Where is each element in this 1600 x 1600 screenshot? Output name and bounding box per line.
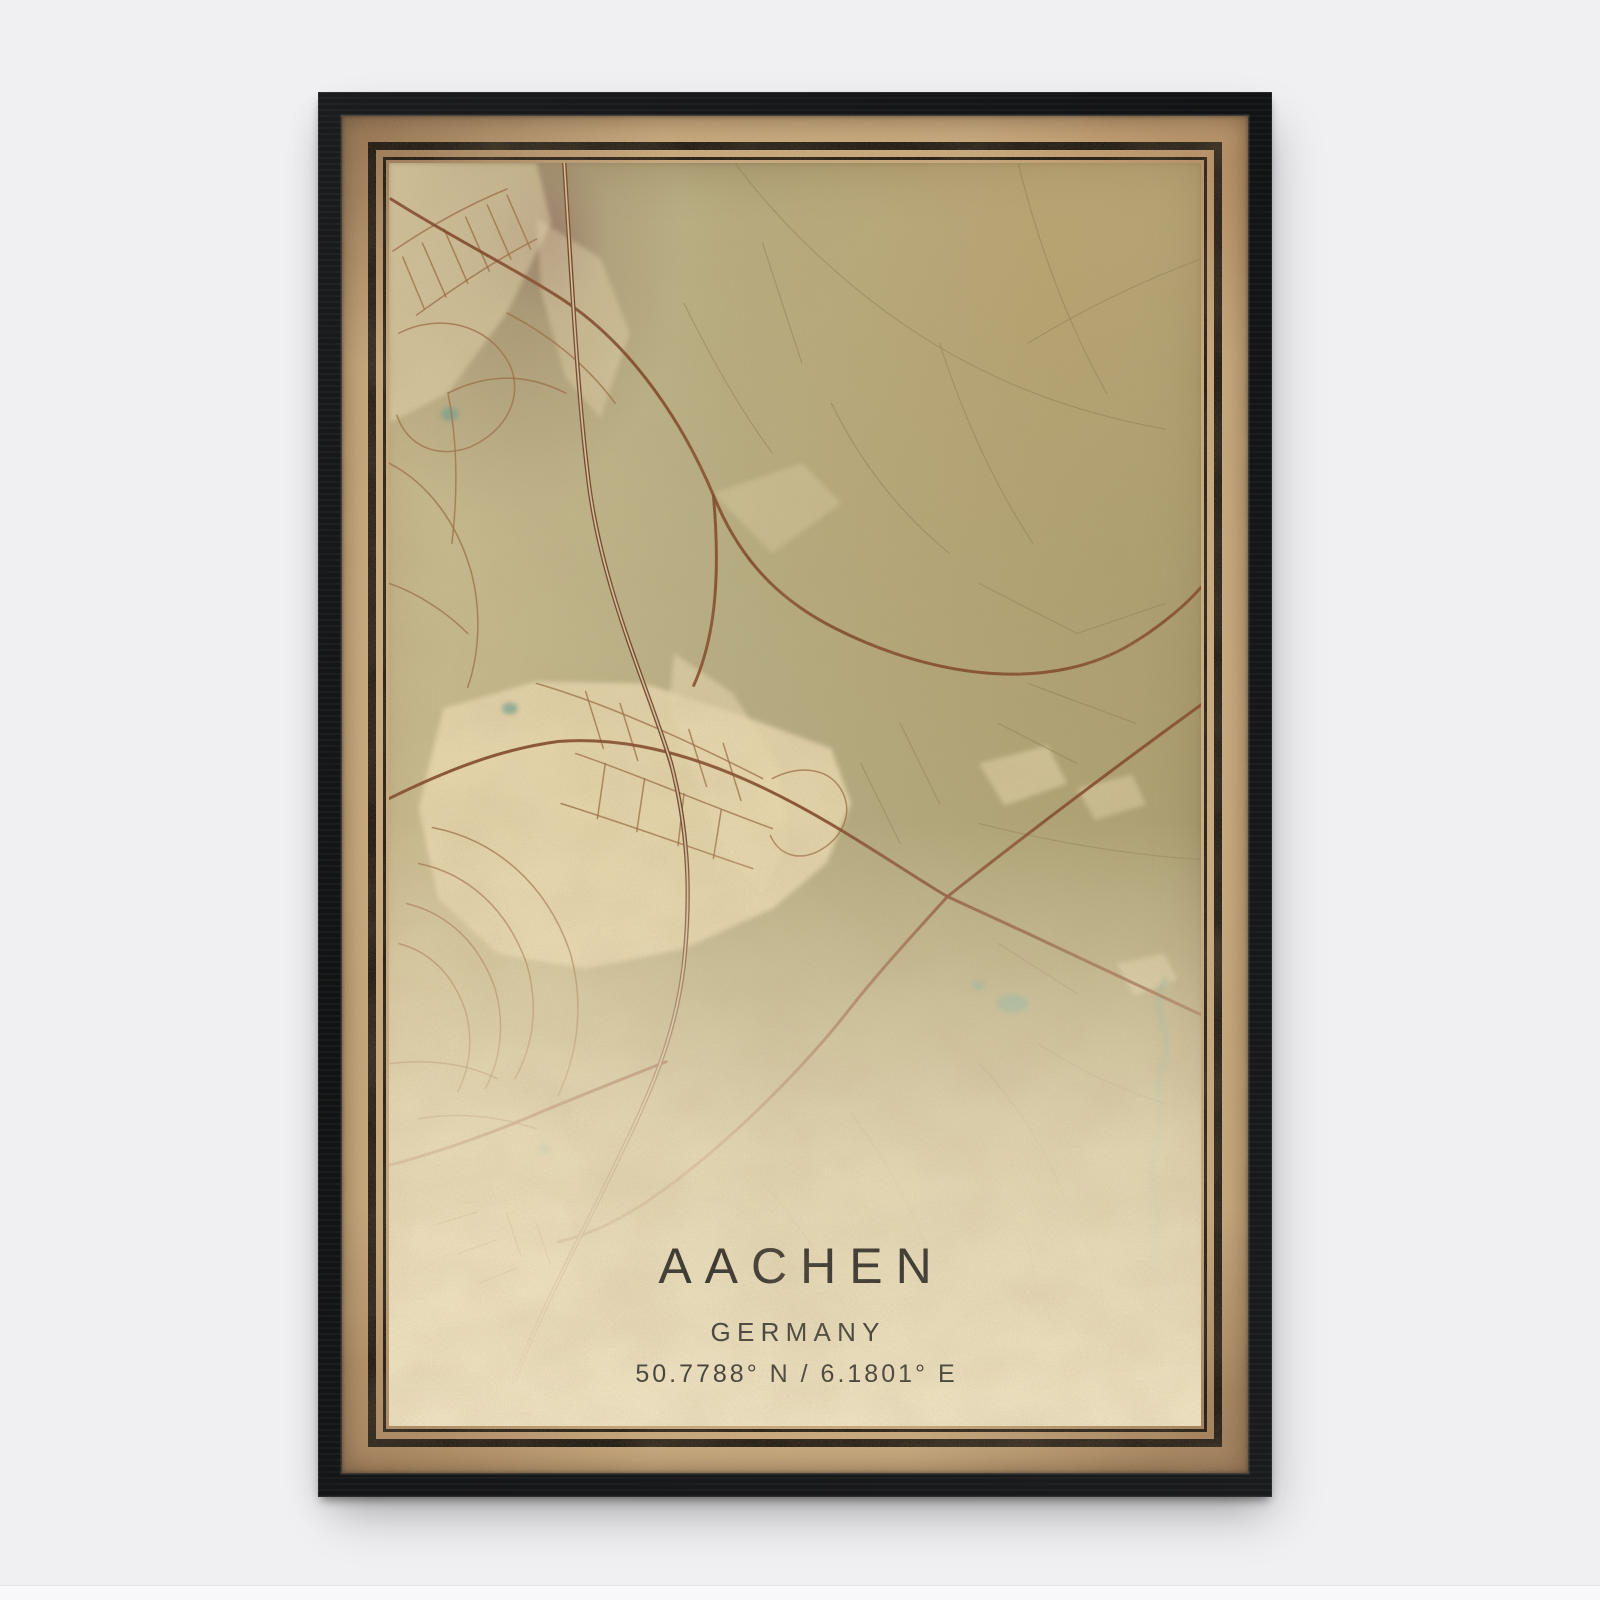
- bottom-fade: [389, 163, 1201, 1426]
- poster-title: AACHEN: [389, 1241, 1201, 1291]
- poster-coordinates: 50.7788° N / 6.1801° E: [389, 1362, 1201, 1387]
- poster-subtitle: GERMANY: [389, 1319, 1201, 1345]
- city-map: [389, 163, 1201, 1426]
- product-photo: AACHEN GERMANY 50.7788° N / 6.1801° E: [0, 0, 1600, 1600]
- title-block: AACHEN GERMANY 50.7788° N / 6.1801° E: [389, 1241, 1201, 1387]
- map-area: AACHEN GERMANY 50.7788° N / 6.1801° E: [389, 163, 1201, 1426]
- poster-frame: AACHEN GERMANY 50.7788° N / 6.1801° E: [318, 92, 1272, 1497]
- poster-paper: AACHEN GERMANY 50.7788° N / 6.1801° E: [342, 116, 1248, 1473]
- floor-strip: [0, 1585, 1600, 1600]
